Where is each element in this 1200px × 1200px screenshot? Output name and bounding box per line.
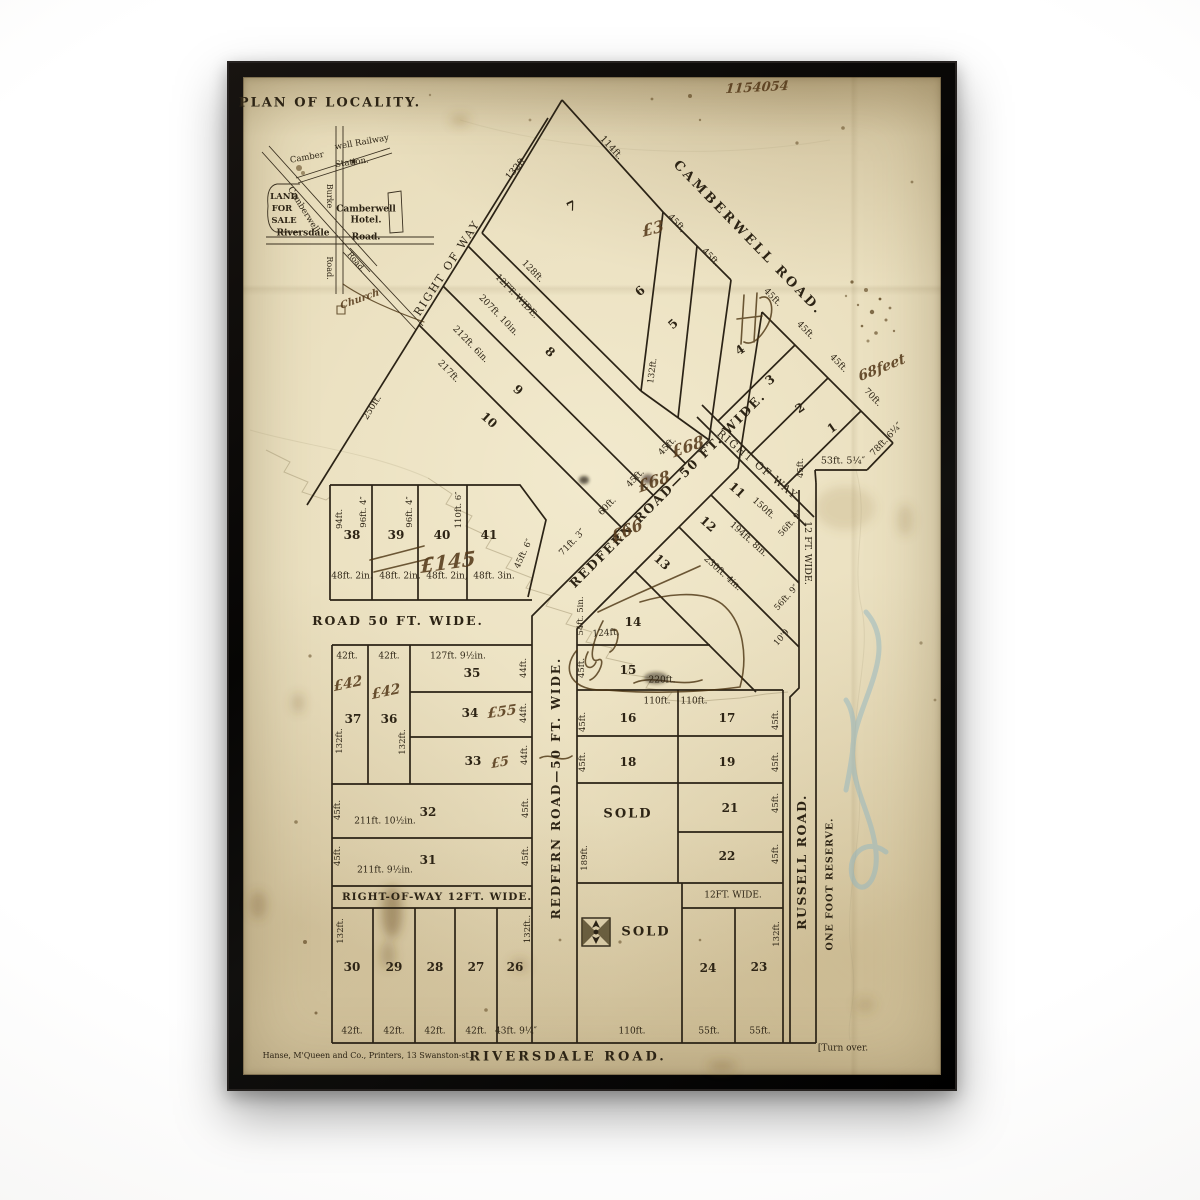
framed-map-poster: PLAN OF LOCALITY.Camberwell RailwayStati… bbox=[0, 0, 1200, 1200]
picture-frame bbox=[227, 61, 957, 1091]
map-paper bbox=[243, 77, 941, 1075]
